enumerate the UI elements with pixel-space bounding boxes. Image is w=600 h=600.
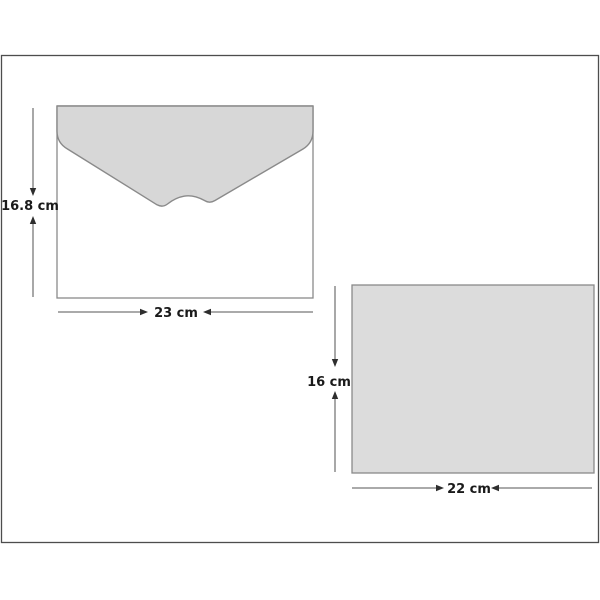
arrow-right-icon [140,309,148,315]
envelope-height-label: 16.8 cm [1,199,59,214]
arrow-down-icon [30,188,36,196]
envelope-width-dimension: 23 cm [58,306,313,321]
card-width-label: 22 cm [447,482,491,497]
envelope-figure: 16.8 cm 23 cm [1,106,313,321]
arrow-right-icon [436,485,444,491]
arrow-left-icon [203,309,211,315]
card-figure: 16 cm 22 cm [307,285,594,497]
arrow-left-icon [491,485,499,491]
arrow-down-icon [332,359,338,367]
arrow-up-icon [30,216,36,224]
card-width-dimension: 22 cm [352,482,592,497]
dimension-diagram: 16.8 cm 23 cm 16 cm [0,0,600,600]
envelope-height-dimension: 16.8 cm [1,108,59,297]
arrow-up-icon [332,391,338,399]
card-rectangle [352,285,594,473]
card-height-label: 16 cm [307,375,351,390]
envelope-width-label: 23 cm [154,306,198,321]
diagram-canvas: 16.8 cm 23 cm 16 cm [0,0,600,600]
card-height-dimension: 16 cm [307,286,351,472]
